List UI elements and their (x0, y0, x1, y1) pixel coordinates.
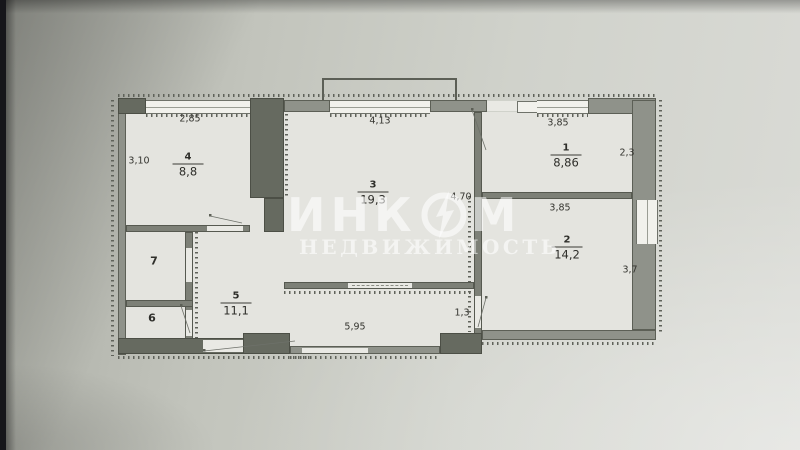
dim-room4-height: 3,10 (128, 156, 149, 167)
room-6-number: 6 (148, 312, 156, 325)
room-5-label: 5 11,1 (221, 291, 252, 318)
room-1-label: 1 8,86 (551, 143, 582, 170)
annotation-leader-lines (0, 0, 800, 450)
room-1-number: 1 (551, 143, 582, 156)
photo-left-edge (0, 0, 6, 450)
room-5-number: 5 (221, 291, 252, 304)
dim-room4-width: 2,85 (179, 114, 200, 125)
room-5-area: 11,1 (223, 304, 249, 318)
floor-plan-photo: 4 8,8 3 19,3 1 8,86 2 14,2 5 11,1 7 6 2,… (0, 0, 800, 450)
room-2-label: 2 14,2 (552, 235, 583, 262)
room-3-label: 3 19,3 (358, 180, 389, 207)
dim-room1-width: 3,85 (547, 118, 568, 129)
dim-room2-width: 3,85 (549, 203, 570, 214)
room-4-area: 8,8 (179, 165, 197, 179)
dim-room1-height: 2,3 (619, 148, 634, 159)
dim-hall-length: 5,95 (344, 322, 365, 333)
room-1-area: 8,86 (553, 156, 579, 170)
room-3-number: 3 (358, 180, 389, 193)
room-2-number: 2 (552, 235, 583, 248)
room-4-label: 4 8,8 (173, 152, 204, 179)
room-2-area: 14,2 (554, 248, 580, 262)
room-7-number: 7 (150, 255, 158, 268)
room-3-area: 19,3 (360, 193, 386, 207)
photo-left-shadow (6, 0, 16, 450)
dim-hall-width: 1,3 (454, 308, 469, 319)
dim-room3-height: 4,70 (450, 192, 471, 203)
dim-room2-height: 3,7 (622, 265, 637, 276)
dim-room3-width: 4,13 (369, 116, 390, 127)
room-4-number: 4 (173, 152, 204, 165)
